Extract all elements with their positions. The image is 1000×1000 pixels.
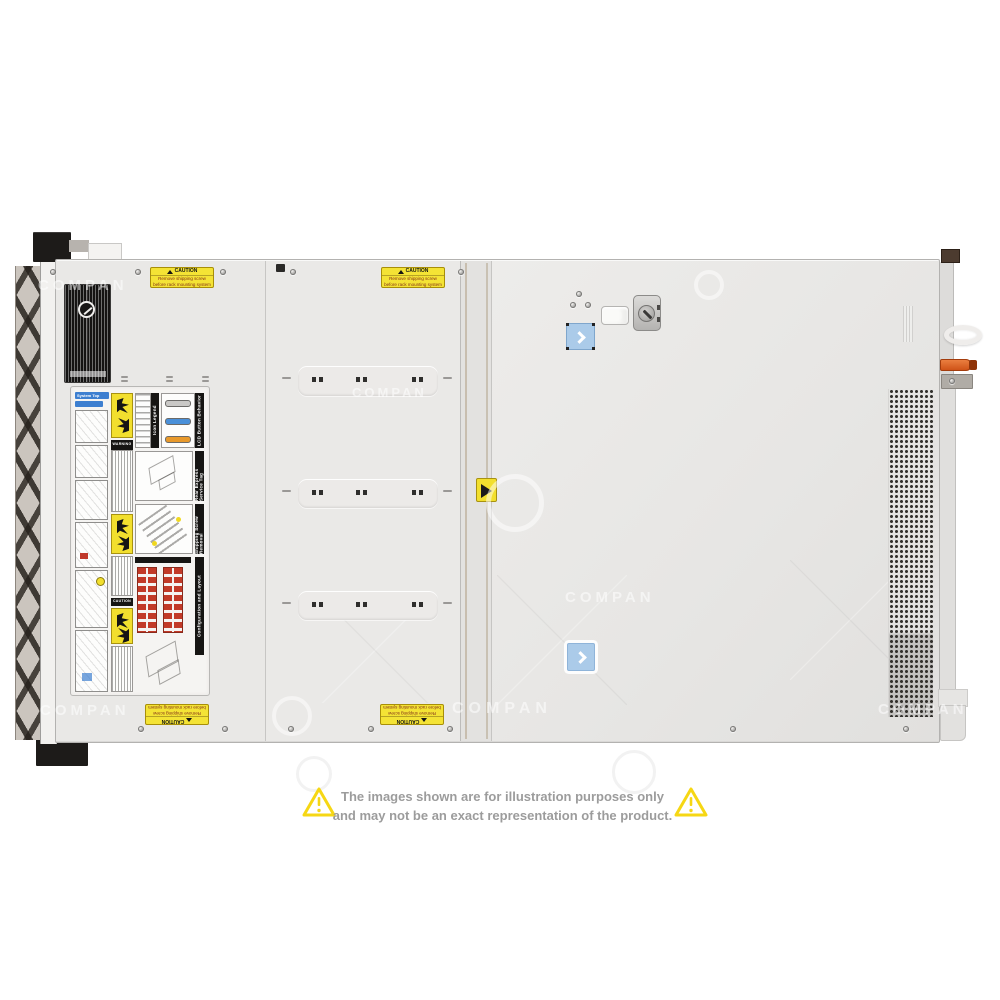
cover-screw [290,269,296,275]
grip-recess [298,479,438,508]
shipping-caution-label: CAUTION Remove shipping screw before rac… [380,704,444,725]
pinch-hazard-sticker [111,514,133,554]
product-photo-stage: CAUTION Remove shipping screw before rac… [0,0,1000,1000]
section-header-service-tag: Rear Express Service Tag [195,451,204,501]
service-info-panel: System Top WARNING CAUTION [70,386,210,696]
drive-bay-grid [163,567,183,633]
watermark-logo [694,270,724,300]
latch-screw [949,378,955,384]
vent-slot-pair [166,376,173,382]
section-header-icon-legend: Icon Legend [151,393,159,448]
instruction-thumbnail [75,410,108,443]
rear-vent-grid [888,389,933,717]
warning-triangle-icon [674,786,708,818]
caution-line2: before rack mounting system [381,704,443,710]
keylock-cylinder [638,305,655,322]
caution-title: CAUTION [397,717,420,724]
warning-triangle-icon [167,270,173,274]
rail-diagram [138,505,188,554]
cover-screw [135,269,141,275]
cover-release-label [567,643,595,671]
shipping-caution-label: CAUTION Remove shipping screw before rac… [145,704,209,725]
rear-service-tag-content [135,451,193,501]
chevron-right-icon [574,651,587,664]
screw-highlight [176,517,181,522]
pinch-icon [117,418,129,433]
cover-release-label [566,323,595,350]
grip-recess [298,591,438,620]
lcd-pill-orange [165,436,191,443]
lever-tip [969,360,977,370]
instruction-text-block [111,646,133,692]
section-header-shipping: Shipping Screw Removal [195,504,204,554]
instruction-thumbnail [75,522,108,568]
seam-dash [443,602,452,604]
rear-metal-latch [941,374,973,389]
shipping-caution-label: CAUTION Remove shipping screw before rac… [381,267,445,288]
seam-dash [282,602,291,604]
caution-bar: CAUTION [111,598,133,606]
yellow-callout [96,577,105,586]
instruction-thumbnail [75,630,108,692]
latch-screw [570,302,576,308]
warning-triangle-icon [398,270,404,274]
cover-screw [138,726,144,732]
instruction-text-block [111,556,133,596]
certification-emblem [78,301,95,318]
unlock-mark [657,317,660,322]
shipping-screw-content [135,504,193,554]
keylock-icon [633,295,661,331]
vent-slot-pair [121,376,128,382]
caution-title: CAUTION [162,717,185,724]
config-top-bar [135,557,191,563]
lcd-pill-gray [165,400,191,407]
pinch-icon [117,536,129,551]
instruction-thumbnail [75,570,108,628]
pinch-hazard-sticker [111,393,133,438]
instruction-thumbnail [75,480,108,520]
warning-bar: WARNING [111,440,133,450]
lcd-behavior-content [161,393,195,448]
panel-system-subheader [75,401,103,407]
red-callout [80,553,88,559]
caution-line2: before rack mounting system [382,282,444,288]
cover-screw [220,269,226,275]
caution-title: CAUTION [406,268,429,275]
pinch-hazard-sticker [111,608,133,644]
seam-dash [443,377,452,379]
watermark-logo [486,474,544,532]
warning-triangle-icon [186,719,192,723]
section-header-lcd: LCD Button Behavior [195,393,204,448]
mounting-hole [276,264,285,272]
watermark-text: COMPAN [38,277,128,294]
rack-ear-top-left [33,232,71,262]
rear-tab [941,249,960,263]
lock-mark [657,305,660,310]
drive-bay-grid [137,567,157,633]
front-rail-cap [88,243,122,260]
watermark-text: COMPAN [40,702,130,719]
caution-line1: Remove shipping screw [381,710,443,716]
cover-screw [458,269,464,275]
cover-screw [50,269,56,275]
cover-screw [903,726,909,732]
pinch-icon [117,398,129,413]
cover-screw [447,726,453,732]
cover-slide-latch [601,306,629,325]
disclaimer-line1: The images shown are for illustration pu… [330,787,675,806]
label-barcode [70,371,106,377]
warning-text-block [111,450,133,512]
shipping-caution-label: CAUTION Remove shipping screw before rac… [150,267,214,288]
release-lever-orange [940,359,972,371]
rear-lower-strip [940,389,956,719]
seam-dash [282,377,291,379]
disclaimer: The images shown are for illustration pu… [330,787,675,825]
cover-screw [222,726,228,732]
icon-legend-content [135,393,151,448]
cover-screw [368,726,374,732]
lcd-pill-blue [165,418,191,425]
pinch-icon [117,628,129,643]
watermark-logo [272,696,312,736]
seam-dash [443,490,452,492]
watermark-text: COMPAN [878,701,968,718]
cover-screw [730,726,736,732]
panel-system-header: System Top [75,392,109,399]
chevron-right-icon [573,331,586,344]
disclaimer-line2: and may not be an exact representation o… [330,806,675,825]
latch-screw [576,291,582,297]
instruction-thumbnail [75,445,108,478]
psu-ring-handle [944,325,982,345]
seam-metal-strip [465,263,467,739]
caution-title: CAUTION [175,268,198,275]
latch-screw [585,302,591,308]
screw-highlight [152,541,157,546]
watermark-text: COMPAN [565,589,655,606]
pinch-icon [117,613,129,628]
seam-dash [282,490,291,492]
rear-marking [903,306,913,342]
section-header-configuration: Configuration and Layout [195,557,204,655]
vent-slot-pair [202,376,209,382]
regulatory-label [64,284,111,383]
watermark-text: COMPAN [452,700,552,718]
server-front-edge [15,266,41,740]
blue-callout [82,673,92,681]
warning-triangle-icon [421,719,427,723]
watermark-text: COMPAN [352,385,427,400]
rack-ear-top-step [69,240,89,252]
pinch-icon [117,519,129,534]
caution-line2: before rack mounting system [146,704,208,710]
caution-line2: before rack mounting system [151,282,213,288]
caution-line1: Remove shipping screw [146,710,208,716]
